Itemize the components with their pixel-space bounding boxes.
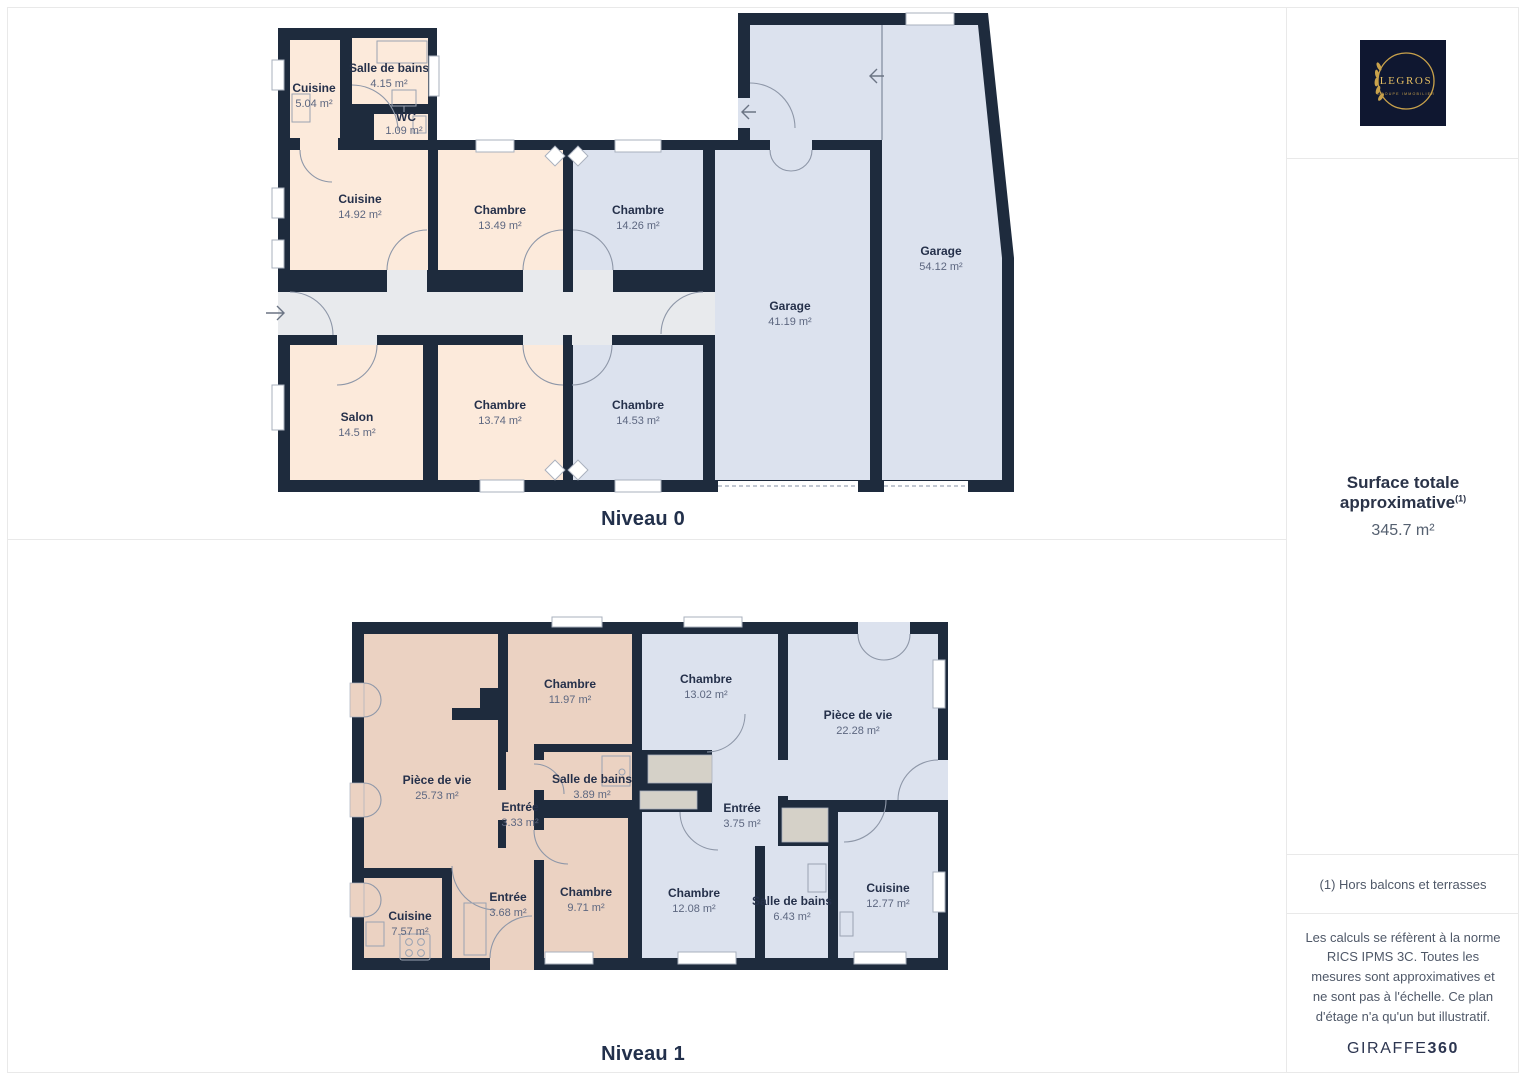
- room-label-area: 12.08 m²: [672, 903, 716, 915]
- room-label-name: Entrée: [501, 800, 539, 814]
- room-label-name: WC: [396, 110, 416, 124]
- logo-subtitle-text: GROUPE IMMOBILIER: [1377, 92, 1435, 96]
- room-label-name: Garage: [920, 244, 962, 258]
- room-label-area: 25.73 m²: [415, 790, 459, 802]
- room-label-name: Entrée: [489, 890, 527, 904]
- info-sidebar: LEGROS GROUPE IMMOBILIER Surface totale …: [1286, 8, 1519, 1072]
- floorplan-page: Cuisine 5.04 m² Salle de bains 4.15 m² W…: [0, 0, 1526, 1080]
- room-label-area: 12.77 m²: [866, 898, 910, 910]
- room-label-name: Pièce de vie: [824, 708, 893, 722]
- room-n0-chambre-1453: [573, 345, 703, 480]
- room-label-name: Salon: [341, 410, 374, 424]
- brand-number: 360: [1428, 1040, 1460, 1057]
- surface-total-title: Surface totale approximative(1): [1287, 473, 1519, 513]
- room-label-area: 14.53 m²: [616, 415, 660, 427]
- room-label-name: Chambre: [560, 885, 612, 899]
- room-label-area: 1.09 m²: [385, 125, 423, 137]
- legal-text: Les calculs se réfèrent à la norme RICS …: [1305, 928, 1501, 1027]
- floorplan-niveau-1: Pièce de vie 25.73 m² Chambre 11.97 m² E…: [0, 539, 1286, 1072]
- room-n1-chambre-1208: [642, 812, 755, 958]
- room-label-name: Entrée: [723, 801, 761, 815]
- room-label-area: 3.33 m²: [501, 817, 539, 829]
- room-label-area: 6.43 m²: [773, 911, 811, 923]
- room-label-name: Garage: [769, 299, 811, 313]
- floor-title-niveau-1: Niveau 1: [0, 1043, 1286, 1066]
- room-label-name: Cuisine: [338, 192, 382, 206]
- room-label-name: Chambre: [474, 203, 526, 217]
- room-label-area: 4.15 m²: [370, 78, 408, 90]
- room-label-area: 3.68 m²: [489, 907, 527, 919]
- surface-footnote-marker: (1): [1455, 493, 1466, 503]
- room-label-area: 14.92 m²: [338, 209, 382, 221]
- room-label-name: Salle de bains: [752, 894, 832, 908]
- room-label-area: 54.12 m²: [919, 261, 963, 273]
- logo-brand-text: LEGROS: [1380, 75, 1432, 87]
- room-label-area: 5.04 m²: [295, 98, 333, 110]
- footnote-section: (1) Hors balcons et terrasses: [1287, 855, 1519, 914]
- floors-divider: [8, 539, 1286, 540]
- surface-total-section: Surface totale approximative(1) 345.7 m²: [1287, 159, 1519, 855]
- brand-name: GIRAFFE: [1347, 1040, 1428, 1057]
- closet: [640, 791, 697, 809]
- room-label-area: 13.74 m²: [478, 415, 522, 427]
- room-label-name: Cuisine: [866, 881, 910, 895]
- room-label-name: Chambre: [474, 398, 526, 412]
- room-label-name: Pièce de vie: [403, 773, 472, 787]
- agency-logo-section: LEGROS GROUPE IMMOBILIER: [1287, 8, 1519, 159]
- room-label-area: 14.5 m²: [338, 427, 376, 439]
- corridor: [290, 292, 703, 335]
- floor-title-niveau-0: Niveau 0: [0, 508, 1286, 531]
- room-label-area: 13.02 m²: [684, 689, 728, 701]
- room-label-area: 7.57 m²: [391, 926, 429, 938]
- room-label-name: Cuisine: [388, 909, 432, 923]
- closet: [782, 808, 828, 842]
- room-n1-piece-de-vie-25: [364, 634, 498, 868]
- agency-logo: LEGROS GROUPE IMMOBILIER: [1360, 40, 1446, 126]
- giraffe360-brand: GIRAFFE360: [1347, 1040, 1459, 1058]
- closet: [648, 755, 712, 783]
- room-label-name: Chambre: [612, 398, 664, 412]
- surface-total-value: 345.7 m²: [1371, 522, 1434, 540]
- legal-section: Les calculs se réfèrent à la norme RICS …: [1287, 914, 1519, 1072]
- room-label-area: 3.75 m²: [723, 818, 761, 830]
- room-n0-chambre-1374: [438, 345, 563, 480]
- room-label-area: 9.71 m²: [567, 902, 605, 914]
- room-label-area: 41.19 m²: [768, 316, 812, 328]
- room-label-name: Chambre: [680, 672, 732, 686]
- wall-stub: [480, 688, 498, 720]
- room-label-name: Chambre: [668, 886, 720, 900]
- floorplan-niveau-0: Cuisine 5.04 m² Salle de bains 4.15 m² W…: [0, 0, 1286, 539]
- room-label-area: 11.97 m²: [549, 694, 592, 706]
- room-label-area: 22.28 m²: [836, 725, 880, 737]
- footnote-text: (1) Hors balcons et terrasses: [1320, 877, 1487, 892]
- room-label-area: 3.89 m²: [573, 789, 611, 801]
- room-label-name: Chambre: [612, 203, 664, 217]
- room-label-area: 14.26 m²: [616, 220, 660, 232]
- room-label-name: Cuisine: [292, 81, 336, 95]
- room-label-name: Salle de bains: [349, 61, 429, 75]
- room-label-area: 13.49 m²: [478, 220, 522, 232]
- room-label-name: Chambre: [544, 677, 596, 691]
- room-n0-garage-41: [715, 150, 870, 480]
- room-label-name: Salle de bains: [552, 772, 632, 786]
